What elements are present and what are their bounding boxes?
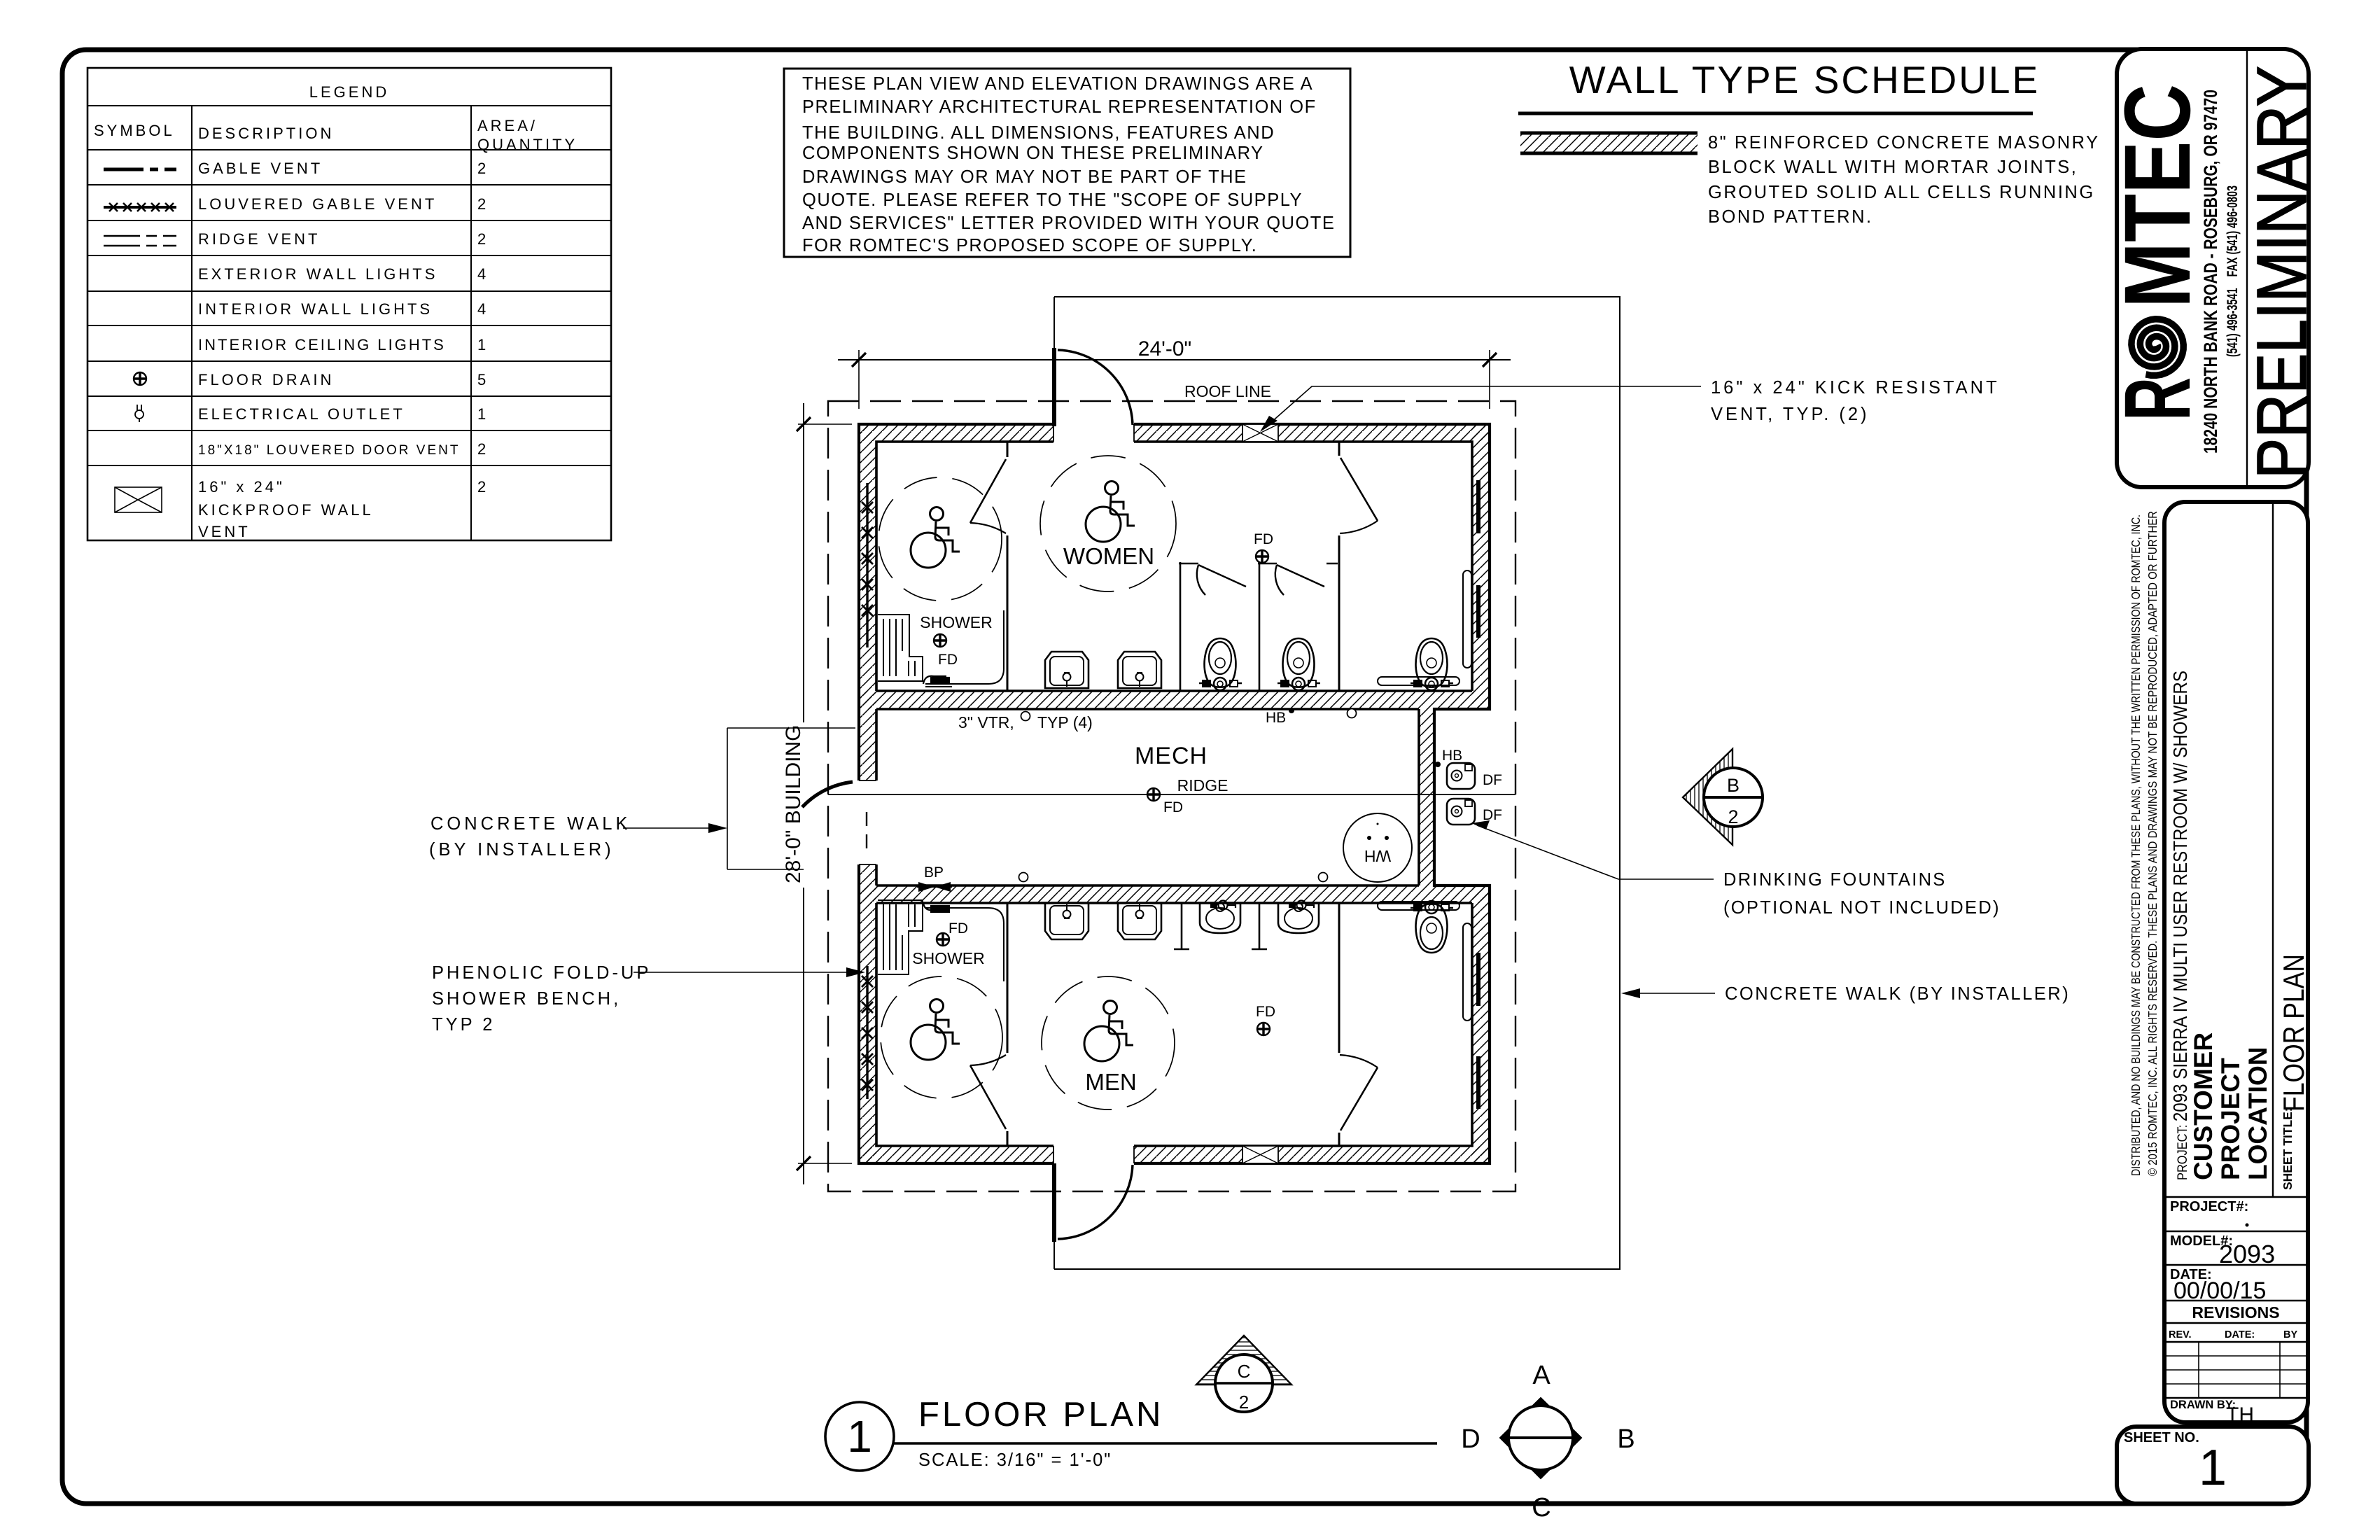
- svg-text:RIDGE VENT: RIDGE VENT: [198, 230, 320, 248]
- svg-text:VENT, TYP. (2): VENT, TYP. (2): [1711, 405, 1870, 424]
- svg-text:HB: HB: [1266, 710, 1286, 726]
- svg-text:WOMEN: WOMEN: [1063, 543, 1154, 569]
- svg-text:RIDGE: RIDGE: [1177, 776, 1228, 794]
- svg-text:BLOCK WALL WITH MORTAR JOINTS,: BLOCK WALL WITH MORTAR JOINTS,: [1708, 157, 2078, 177]
- svg-text:(541) 496-3541 FAX (541) 49: (541) 496-3541 FAX (541) 496-0803: [2225, 185, 2241, 357]
- svg-text:DF: DF: [1483, 772, 1502, 788]
- svg-text:EXTERIOR WALL LIGHTS: EXTERIOR WALL LIGHTS: [198, 265, 437, 283]
- svg-text:2: 2: [477, 160, 489, 177]
- svg-text:SCALE: 3/16" = 1'-0": SCALE: 3/16" = 1'-0": [918, 1450, 1112, 1470]
- svg-text:DRAWINGS MAY OR MAY NOT BE PAR: DRAWINGS MAY OR MAY NOT BE PART OF THE: [802, 167, 1247, 187]
- svg-text:SHOWER: SHOWER: [920, 613, 993, 631]
- svg-text:ELECTRICAL OUTLET: ELECTRICAL OUTLET: [198, 405, 405, 423]
- svg-text:REV.: REV.: [2169, 1329, 2192, 1340]
- svg-text:(BY INSTALLER): (BY INSTALLER): [429, 840, 615, 860]
- svg-text:LOUVERED GABLE VENT: LOUVERED GABLE VENT: [198, 195, 437, 213]
- svg-text:00/00/15: 00/00/15: [2173, 1277, 2266, 1304]
- svg-text:PHENOLIC FOLD-UP: PHENOLIC FOLD-UP: [432, 963, 651, 983]
- svg-text:THE BUILDING. ALL DIMENSIONS,: THE BUILDING. ALL DIMENSIONS, FEATURES A…: [802, 123, 1275, 143]
- svg-text:BP: BP: [924, 864, 944, 881]
- svg-text:TH: TH: [2226, 1403, 2254, 1427]
- svg-text:CONCRETE WALK: CONCRETE WALK: [430, 814, 631, 834]
- svg-text:FD: FD: [1254, 531, 1273, 547]
- svg-text:HB: HB: [1442, 748, 1462, 764]
- svg-text:PROJECT: PROJECT: [2216, 1058, 2245, 1180]
- svg-text:BY: BY: [2283, 1329, 2297, 1340]
- svg-text:GABLE VENT: GABLE VENT: [198, 160, 323, 177]
- svg-text:PROJECT#:: PROJECT#:: [2170, 1199, 2248, 1214]
- svg-text:18240 NORTH BANK ROAD - ROSEBU: 18240 NORTH BANK ROAD - ROSEBURG, OR 974…: [2200, 90, 2221, 454]
- svg-text:MEN: MEN: [1085, 1069, 1136, 1095]
- svg-text:1: 1: [2199, 1440, 2227, 1496]
- svg-text:1: 1: [477, 336, 489, 353]
- svg-text:B: B: [1727, 775, 1739, 796]
- svg-text:© 2015 ROMTEC, INC. ALL RIGHT: © 2015 ROMTEC, INC. ALL RIGHTS RESERVED.…: [2145, 511, 2159, 1176]
- svg-text:WALL TYPE SCHEDULE: WALL TYPE SCHEDULE: [1569, 58, 2040, 101]
- svg-text:SYMBOL: SYMBOL: [94, 122, 175, 139]
- svg-text:2: 2: [477, 195, 489, 213]
- svg-text:FD: FD: [938, 652, 958, 668]
- svg-text:3" VTR,: 3" VTR,: [958, 713, 1014, 731]
- svg-text:FD: FD: [948, 920, 968, 937]
- svg-text:SHOWER: SHOWER: [912, 949, 985, 967]
- svg-text:MTEC: MTEC: [2106, 84, 2210, 308]
- svg-text:DATE:: DATE:: [2225, 1329, 2255, 1340]
- svg-text:BOND PATTERN.: BOND PATTERN.: [1708, 207, 1873, 227]
- svg-text:AREA/: AREA/: [477, 117, 538, 134]
- svg-text:CONCRETE WALK (BY INSTALLER): CONCRETE WALK (BY INSTALLER): [1725, 984, 2070, 1004]
- svg-text:FLOOR PLAN: FLOOR PLAN: [2277, 954, 2310, 1112]
- svg-text:4: 4: [477, 300, 489, 318]
- svg-text:(OPTIONAL NOT INCLUDED): (OPTIONAL NOT INCLUDED): [1723, 898, 2001, 918]
- svg-text:18"X18" LOUVERED DOOR VENT: 18"X18" LOUVERED DOOR VENT: [198, 443, 460, 458]
- svg-text:TYP (4): TYP (4): [1037, 713, 1093, 731]
- svg-text:PRELIMINARY ARCHITECTURAL REPR: PRELIMINARY ARCHITECTURAL REPRESENTATION…: [802, 97, 1317, 117]
- svg-text:PRELIMINARY: PRELIMINARY: [2243, 66, 2321, 479]
- svg-text:WH: WH: [1364, 847, 1391, 865]
- svg-text:2: 2: [1239, 1392, 1249, 1413]
- svg-text:SHOWER BENCH,: SHOWER BENCH,: [432, 989, 621, 1009]
- svg-text:PROJECT: 2093 SIERRA IV MULTI: PROJECT: 2093 SIERRA IV MULTI USER RESTR…: [2169, 671, 2191, 1180]
- svg-text:AND SERVICES" LETTER PROVIDED: AND SERVICES" LETTER PROVIDED WITH YOUR …: [802, 213, 1335, 233]
- svg-text:2: 2: [1728, 806, 1738, 827]
- svg-text:16" x 24": 16" x 24": [198, 478, 285, 496]
- svg-text:FD: FD: [1256, 1004, 1275, 1020]
- svg-text:C: C: [1238, 1361, 1251, 1382]
- svg-text:DF: DF: [1483, 807, 1502, 823]
- svg-text:R: R: [2106, 377, 2210, 421]
- svg-text:1: 1: [477, 405, 489, 423]
- svg-text:DESCRIPTION: DESCRIPTION: [198, 125, 334, 142]
- svg-text:5: 5: [477, 371, 489, 388]
- svg-text:LEGEND: LEGEND: [309, 83, 389, 101]
- svg-text:VENT: VENT: [198, 523, 251, 540]
- svg-text:QUANTITY: QUANTITY: [477, 136, 577, 153]
- svg-text:TYP 2: TYP 2: [432, 1015, 495, 1035]
- svg-text:B: B: [1617, 1424, 1634, 1454]
- svg-text:4: 4: [477, 265, 489, 283]
- svg-text:DISTRIBUTED, AND NO BUILDINGS: DISTRIBUTED, AND NO BUILDINGS MAY BE CON…: [2129, 514, 2143, 1176]
- svg-text:FD: FD: [1163, 799, 1183, 815]
- svg-text:GROUTED SOLID ALL CELLS RUNNIN: GROUTED SOLID ALL CELLS RUNNING: [1708, 183, 2095, 202]
- svg-text:C: C: [1532, 1493, 1550, 1522]
- svg-text:QUOTE. PLEASE REFER TO THE "SC: QUOTE. PLEASE REFER TO THE "SCOPE OF SUP…: [802, 190, 1303, 210]
- svg-text:FLOOR DRAIN: FLOOR DRAIN: [198, 371, 334, 388]
- svg-text:CUSTOMER: CUSTOMER: [2189, 1032, 2218, 1180]
- svg-text:2093: 2093: [2219, 1240, 2275, 1268]
- svg-text:D: D: [1461, 1424, 1480, 1454]
- svg-text:SHEET TITLE:: SHEET TITLE:: [2281, 1107, 2295, 1190]
- svg-text:REVISIONS: REVISIONS: [2192, 1303, 2279, 1322]
- svg-text:THESE PLAN VIEW AND ELEVATION: THESE PLAN VIEW AND ELEVATION DRAWINGS A…: [802, 74, 1313, 94]
- svg-text:SHEET NO.: SHEET NO.: [2124, 1430, 2199, 1445]
- svg-text:ROOF LINE: ROOF LINE: [1184, 382, 1271, 400]
- svg-text:DRINKING FOUNTAINS: DRINKING FOUNTAINS: [1723, 870, 1947, 890]
- svg-text:A: A: [1532, 1361, 1550, 1390]
- svg-text:INTERIOR CEILING LIGHTS: INTERIOR CEILING LIGHTS: [198, 336, 446, 353]
- svg-text:8" REINFORCED CONCRETE MASONRY: 8" REINFORCED CONCRETE MASONRY: [1708, 133, 2100, 153]
- svg-text:INTERIOR WALL LIGHTS: INTERIOR WALL LIGHTS: [198, 300, 433, 318]
- svg-text:KICKPROOF WALL: KICKPROOF WALL: [198, 501, 374, 519]
- svg-text:24'-0": 24'-0": [1138, 337, 1191, 360]
- svg-text:FOR ROMTEC'S PROPOSED SCOPE OF: FOR ROMTEC'S PROPOSED SCOPE OF SUPPLY.: [802, 236, 1257, 255]
- svg-text:MECH: MECH: [1135, 743, 1207, 769]
- svg-text:2: 2: [477, 440, 489, 458]
- svg-text:1: 1: [847, 1411, 872, 1462]
- svg-text:FLOOR PLAN: FLOOR PLAN: [918, 1396, 1163, 1434]
- svg-text:2: 2: [477, 230, 489, 248]
- svg-text:16" x 24" KICK RESISTANT: 16" x 24" KICK RESISTANT: [1711, 378, 2000, 398]
- svg-text:28'-0" BUILDING: 28'-0" BUILDING: [782, 725, 805, 883]
- svg-text:COMPONENTS SHOWN ON THESE PREL: COMPONENTS SHOWN ON THESE PRELIMINARY: [802, 143, 1264, 163]
- svg-text:2: 2: [477, 478, 489, 496]
- svg-text:LOCATION: LOCATION: [2243, 1047, 2272, 1180]
